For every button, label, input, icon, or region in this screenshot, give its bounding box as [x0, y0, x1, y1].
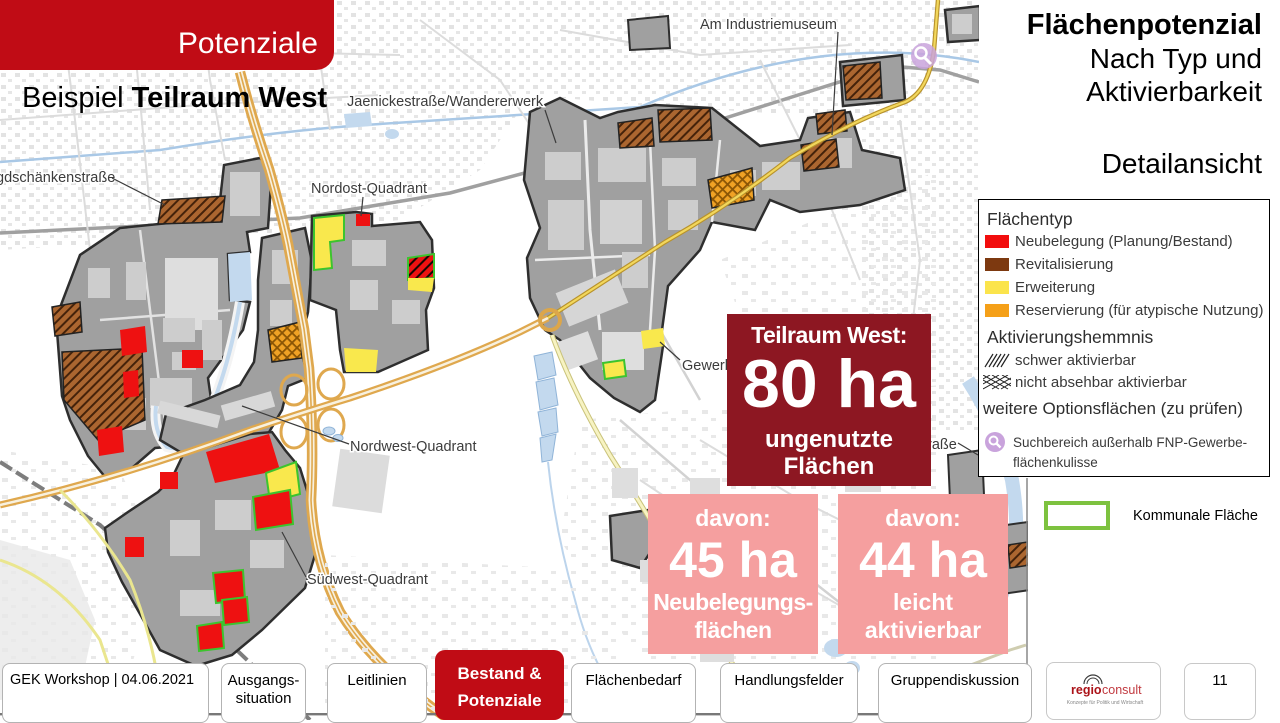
- svg-text:Südwest-Quadrant: Südwest-Quadrant: [307, 572, 428, 588]
- svg-text:gdschänkenstraße: gdschänkenstraße: [0, 170, 115, 186]
- svg-text:Nordwest-Quadrant: Nordwest-Quadrant: [350, 439, 477, 455]
- svg-text:Jaenickestraße/Wandererwerk: Jaenickestraße/Wandererwerk: [347, 94, 544, 110]
- svg-text:consult: consult: [1102, 683, 1142, 697]
- svg-text:Konzepte für Politik und Wirts: Konzepte für Politik und Wirtschaft: [1067, 700, 1144, 706]
- svg-text:Nordost-Quadrant: Nordost-Quadrant: [311, 181, 427, 197]
- svg-text:Am Industriemuseum: Am Industriemuseum: [700, 17, 837, 33]
- svg-text:regio: regio: [1071, 683, 1102, 697]
- svg-text:raße: raße: [927, 437, 957, 453]
